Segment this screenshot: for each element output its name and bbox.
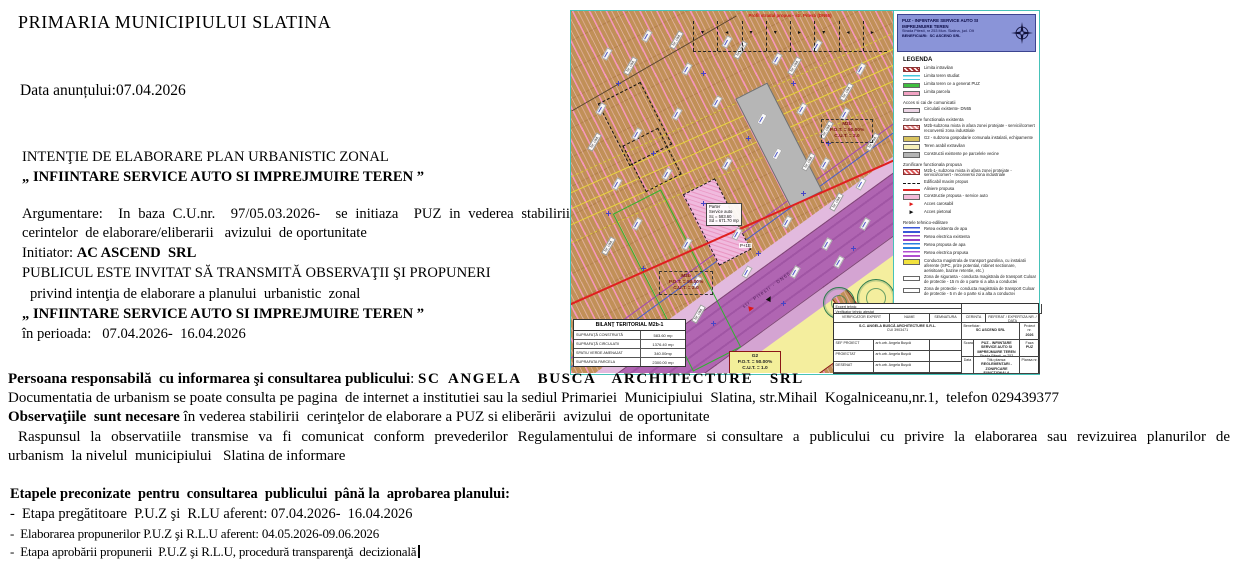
observations-line[interactable]: Observaţiile sunt necesare în vederea st… bbox=[8, 408, 1230, 427]
survey-marker bbox=[781, 215, 792, 228]
legend-item: Retea propusa de apa bbox=[903, 243, 1036, 249]
notice-plan-title-repeat[interactable]: „ INFIINTARE SERVICE AUTO SI IMPREJMUIRE… bbox=[22, 305, 570, 324]
zone-label-m2b: M2bP.O.T. = 50.00%C.U.T. = 2.0 bbox=[659, 271, 713, 295]
proiect-title: PUZ - INFIINTARE SERVICE AUTO SI IMPREJM… bbox=[976, 341, 1018, 354]
survey-marker bbox=[601, 47, 612, 60]
legend-item-label: Retea electrica existenta bbox=[924, 235, 1036, 240]
initiator-value: AC ASCEND SRL bbox=[77, 245, 197, 261]
survey-cross-icon bbox=[851, 246, 856, 251]
documentation-line[interactable]: Documentatia de urbanism se poate consul… bbox=[8, 389, 1230, 408]
legend-swatch-icon bbox=[903, 276, 920, 282]
legend-item: Limita parcela bbox=[903, 90, 1036, 96]
legend-item-label: Retea existenta de apa bbox=[924, 227, 1036, 232]
street-profile-detail: Profil stradal propus - str. Pitesti (DN… bbox=[693, 13, 887, 69]
titleblock-plansa: Titlu plansa:REGLEMENTARI - ZONIFICARE F… bbox=[974, 357, 1020, 374]
legend-item-label: M2b-1- subzona mixta in afara zonei prot… bbox=[924, 169, 1036, 179]
titleblock-proiect-nr: Proiect nr.2026 bbox=[1020, 323, 1040, 340]
proiect-anul: 2026 bbox=[1022, 333, 1038, 337]
legend-swatch-icon bbox=[903, 259, 920, 265]
text-cursor bbox=[418, 545, 420, 558]
survey-cross-icon bbox=[701, 71, 706, 76]
notice-public-invite2[interactable]: privind intenţia de elaborare a planului… bbox=[22, 285, 570, 304]
titleblock-empty bbox=[962, 304, 1042, 314]
titleblock-data: Data bbox=[962, 357, 974, 374]
titleblock-plansa-nr: Plansa nr. bbox=[1020, 357, 1040, 374]
legend-item-label: Retea electrica propusa bbox=[924, 251, 1036, 256]
marker-tick bbox=[774, 152, 778, 158]
marker-tick bbox=[734, 232, 738, 238]
legend-item: G2 - subzona gospodarie comunala instala… bbox=[903, 136, 1036, 142]
legend-item-label: Limita teren ce a generat PUZ bbox=[924, 82, 1036, 87]
bilant-row-label: SUPRAFAŢĂ CIRCULATII bbox=[574, 340, 641, 348]
legend-header: PUZ - INFIINTARE SERVICE AUTO SI IMPREJM… bbox=[897, 14, 1036, 52]
titleblock-faza: FazaPUZ bbox=[1020, 340, 1040, 357]
legend-header-title: PUZ - INFIINTARE SERVICE AUTO SI IMPREJM… bbox=[902, 18, 1009, 29]
building-label: ParterService autoSc = 583.60Sd = 671.70… bbox=[706, 203, 742, 226]
label-line: Sd = 671.70 mp bbox=[709, 219, 739, 224]
legend-swatch-icon bbox=[903, 189, 920, 191]
legend-swatch-icon bbox=[903, 251, 920, 257]
survey-cross-icon bbox=[791, 81, 796, 86]
titleblock-col-header: CERINTA bbox=[962, 314, 986, 323]
titleblock-col-header: SEMNATURA bbox=[930, 314, 962, 323]
parcel-cadastral-label: Nr. cad. bbox=[601, 236, 616, 256]
bilant-row: SUPRAFAŢĂ CONSTRUITĂ583.60 mp bbox=[574, 331, 685, 340]
faza-value: PUZ bbox=[1022, 345, 1038, 349]
marker-tick bbox=[674, 112, 678, 118]
spacer bbox=[22, 189, 570, 205]
legend-item: Retea electrica existenta bbox=[903, 235, 1036, 241]
marker-tick bbox=[644, 34, 648, 40]
arrow-swatch-icon: ► bbox=[903, 202, 920, 208]
survey-marker bbox=[796, 102, 807, 115]
survey-marker bbox=[671, 107, 682, 120]
legend-swatch-icon bbox=[903, 243, 920, 249]
beneficiar-value: SC ASCEND SRL bbox=[964, 328, 1018, 332]
titleblock-role-label: DESENAT bbox=[834, 362, 874, 373]
legend-swatch-icon bbox=[903, 136, 920, 142]
marker-tick bbox=[784, 220, 788, 226]
legend-item: Teren arabil extravilan bbox=[903, 144, 1036, 150]
titleblock-role-name: arh.urb. Angela Buşcă bbox=[874, 362, 930, 373]
bilant-title: BILANŢ TERITORIAL M2b-1 bbox=[574, 320, 685, 331]
legend-item: Limita intravilan bbox=[903, 66, 1036, 72]
titleblock-col-header: VERIFICATOR EXPERT bbox=[834, 314, 890, 323]
legend-item-label: Acces pietonal bbox=[924, 210, 1036, 215]
legend-section-heading: Retele tehnico-edilitare bbox=[903, 220, 1039, 225]
marker-tick bbox=[862, 222, 866, 228]
legend-swatch-icon bbox=[903, 144, 920, 150]
marker-tick bbox=[842, 112, 846, 118]
legend-swatch-icon bbox=[903, 125, 920, 131]
responsible-label: Persoana responsabilă cu informarea şi c… bbox=[8, 371, 410, 387]
compass-rose-icon bbox=[1011, 22, 1033, 44]
marker-tick bbox=[604, 52, 608, 58]
response-paragraph[interactable]: Raspunsul la observatiile transmise va f… bbox=[8, 428, 1230, 466]
stage-item[interactable]: - Etapa pregătitoare P.U.Z şi R.LU afere… bbox=[10, 505, 710, 525]
marker-tick bbox=[684, 242, 688, 248]
legend-item-label: Edificabil maxim propus bbox=[924, 180, 1036, 185]
marker-tick bbox=[858, 182, 862, 188]
marker-tick bbox=[822, 162, 826, 168]
arrow-swatch-icon: ► bbox=[903, 210, 920, 216]
zone-label-g2: G2P.O.T. = 50.00%C.U.T. = 1.0 bbox=[729, 351, 781, 373]
stages-list: - Etapa pregătitoare P.U.Z şi R.LU afere… bbox=[10, 505, 710, 561]
legend-item: Edificabil maxim propus bbox=[903, 180, 1036, 185]
titleblock-role-label: SEF PROIECT bbox=[834, 340, 874, 351]
street-profile-section: ▾◂▾▾ ▸▾◂▸ bbox=[693, 21, 887, 52]
titleblock-company: S.C. ANGELA BUSCĂ ARCHITECTURE S.R.L.CUI… bbox=[834, 323, 962, 340]
bilant-row: SUPRAFATA PARCELA2300.00 mp bbox=[574, 358, 685, 366]
legend-item: ►Acces pietonal bbox=[903, 210, 1036, 216]
bilant-rows: SUPRAFAŢĂ CONSTRUITĂ583.60 mpSUPRAFAŢĂ C… bbox=[574, 331, 685, 366]
titleblock-role-label: PROIECTAT bbox=[834, 351, 874, 362]
legend-item-label: Teren arabil extravilan bbox=[924, 144, 1036, 149]
stage-item[interactable]: - Etapa aprobării propunerii P.U.Z şi R.… bbox=[10, 543, 710, 561]
bilant-row-value: 2300.00 mp bbox=[641, 358, 685, 366]
label-line: C.U.T. = 2.0 bbox=[825, 134, 869, 140]
legend-swatch-icon bbox=[903, 83, 920, 89]
marker-tick bbox=[664, 172, 668, 178]
stage-item[interactable]: - Elaborarea propunerilor P.U.Z şi R.L.U… bbox=[10, 525, 710, 543]
legend-item: Zona de protectie - conducta magistrala … bbox=[903, 287, 1036, 297]
footer-block[interactable]: Persoana responsabilă cu informarea şi c… bbox=[8, 370, 1230, 466]
survey-marker bbox=[721, 157, 732, 170]
marker-tick bbox=[792, 270, 796, 276]
legend-section-heading: Zonificare functionala existenta bbox=[903, 117, 1039, 122]
legend-swatch-icon bbox=[903, 183, 920, 184]
legend-swatch-icon bbox=[903, 152, 920, 158]
legend-item-label: Circulatii existente- DN65 bbox=[924, 107, 1036, 112]
marker-tick bbox=[836, 260, 840, 266]
puz-map-panel: str. Pitesti - DN65 ParterService autoSc… bbox=[570, 10, 1040, 375]
legend-items: Limita intravilanLimita teren studiatLim… bbox=[894, 66, 1039, 297]
titleblock-role-name: arh.urb. Angela Buşcă bbox=[874, 351, 930, 362]
survey-cross-icon bbox=[781, 301, 786, 306]
responsible-value: SC ANGELA BUSCA ARCHITECTURE SRL bbox=[418, 371, 804, 387]
notice-argumentare[interactable]: Argumentare: In baza C.U.nr. 97/05.03.20… bbox=[22, 205, 570, 244]
titleblock-signature-cell bbox=[930, 340, 962, 351]
legend-swatch-icon bbox=[903, 227, 920, 233]
legend-header-beneficiary: BENEFICIARI: SC ASCEND SRL bbox=[902, 34, 1009, 39]
stages-block[interactable]: Etapele preconizate pentru consultarea p… bbox=[10, 485, 710, 561]
legend-section-heading: Acces si cai de comunicatii bbox=[903, 100, 1039, 105]
plansa-title: REGLEMENTARI - ZONIFICARE FUNCTIONALA bbox=[976, 362, 1018, 374]
legend-item-label: G2 - subzona gospodarie comunala instala… bbox=[924, 136, 1036, 141]
legend-item: Limita teren ce a generat PUZ bbox=[903, 82, 1036, 88]
legend-item-label: Constructii existente pe parcelele vecin… bbox=[924, 152, 1036, 157]
legend-swatch-icon bbox=[903, 108, 920, 114]
parcel-cadastral-label: Nr. cad. bbox=[587, 132, 602, 152]
legend-item: Aliniere propusa bbox=[903, 187, 1036, 192]
survey-cross-icon bbox=[606, 211, 611, 216]
bilant-row-value: 340.00mp bbox=[641, 349, 685, 357]
legend-item-label: Limita parcela bbox=[924, 90, 1036, 95]
survey-cross-icon bbox=[641, 266, 646, 271]
legend-item: Constructie propusa - service auto bbox=[903, 194, 1036, 200]
survey-marker bbox=[711, 95, 722, 108]
bilant-table: BILANŢ TERITORIAL M2b-1 SUPRAFAŢĂ CONSTR… bbox=[573, 319, 686, 367]
survey-cross-icon bbox=[746, 136, 751, 141]
legend-item-label: M2b-subzona mixta in afara zonei proteja… bbox=[924, 124, 1036, 134]
titleblock-proiect: PUZ - INFIINTARE SERVICE AUTO SI IMPREJM… bbox=[974, 340, 1020, 357]
legend-item-label: Limita teren studiat bbox=[924, 74, 1036, 79]
legend-swatch-icon bbox=[903, 75, 920, 81]
marker-tick bbox=[799, 107, 803, 113]
marker-tick bbox=[614, 182, 618, 188]
survey-marker bbox=[681, 62, 692, 75]
titleblock-col-header: REFERAT / EXPERTIZA NR. / DATA bbox=[986, 314, 1040, 323]
legend-swatch-icon bbox=[903, 194, 920, 200]
bilant-row-value: 583.60 mp bbox=[641, 331, 685, 339]
building-height-tag: P+1E bbox=[739, 243, 752, 248]
titleblock-signature-cell bbox=[930, 362, 962, 373]
drawing-title-block: Expert tehnicVerificator tehnic atestatV… bbox=[833, 303, 1039, 374]
legend-item-label: Acces carosabil bbox=[924, 202, 1036, 207]
notice-block[interactable]: INTENŢIE DE ELABORARE PLAN URBANISTIC ZO… bbox=[22, 148, 570, 345]
legend-item: Conducta magistrala de transport gazolin… bbox=[903, 259, 1036, 273]
legend-item-label: Conducta magistrala de transport gazolin… bbox=[924, 259, 1036, 273]
legend-item-label: Constructie propusa - service auto bbox=[924, 194, 1036, 199]
proiect-nr-label: Proiect nr. bbox=[1022, 324, 1038, 333]
legend-item: M2b-subzona mixta in afara zonei proteja… bbox=[903, 124, 1036, 134]
legend-item: Limita teren studiat bbox=[903, 74, 1036, 80]
titleblock-beneficiar: Beneficiar:SC ASCEND SRL bbox=[962, 323, 1020, 340]
titleblock-company-cui: CUI 3903471 bbox=[836, 328, 960, 332]
marker-tick bbox=[634, 132, 638, 138]
titleblock-signature-cell bbox=[930, 351, 962, 362]
legend-swatch-icon bbox=[903, 288, 920, 294]
survey-cross-icon bbox=[711, 321, 716, 326]
bilant-row-label: SPATIU VERDE AMENAJAT bbox=[574, 349, 641, 357]
marker-tick bbox=[714, 100, 718, 106]
bilant-row: SUPRAFAŢĂ CIRCULATII1376.40 mp bbox=[574, 340, 685, 349]
legend-item: M2b-1- subzona mixta in afara zonei prot… bbox=[903, 169, 1036, 179]
notice-initiator[interactable]: Initiator: AC ASCEND SRL bbox=[22, 244, 570, 263]
legend-item-label: Aliniere propusa bbox=[924, 187, 1036, 192]
survey-cross-icon bbox=[651, 151, 656, 156]
zone-label-m2b: M2bP.O.T. = 50.00%C.U.T. = 2.0 bbox=[821, 119, 873, 143]
legend-item: Constructii existente pe parcelele vecin… bbox=[903, 152, 1036, 158]
legend-swatch-icon bbox=[903, 235, 920, 241]
document-page: PRIMARIA MUNICIPIULUI SLATINA Data anunț… bbox=[0, 0, 1237, 562]
label-line: C.U.T. = 2.0 bbox=[663, 286, 709, 292]
marker-tick bbox=[598, 107, 602, 113]
initiator-label: Initiator: bbox=[22, 245, 77, 261]
legend-item: Zona de siguranta - conducta magistrala … bbox=[903, 275, 1036, 285]
observations-label: Observaţiile sunt necesare bbox=[8, 409, 180, 425]
legend-item: ►Acces carosabil bbox=[903, 202, 1036, 208]
titleblock-role-name: arh.urb. Angela Buşcă bbox=[874, 340, 930, 351]
notice-period[interactable]: în perioada: 07.04.2026- 16.04.2026 bbox=[22, 325, 570, 344]
org-title[interactable]: PRIMARIA MUNICIPIULUI SLATINA bbox=[18, 12, 331, 33]
marker-tick bbox=[744, 270, 748, 276]
access-carosabil-arrow-icon: ► bbox=[746, 303, 757, 314]
legend-item-label: Limita intravilan bbox=[924, 66, 1036, 71]
announcement-date[interactable]: Data anunțului:07.04.2026 bbox=[20, 82, 186, 100]
bilant-row: SPATIU VERDE AMENAJAT340.00mp bbox=[574, 349, 685, 358]
survey-cross-icon bbox=[616, 81, 621, 86]
stages-title[interactable]: Etapele preconizate pentru consultarea p… bbox=[10, 485, 710, 505]
legend-swatch-icon bbox=[903, 169, 920, 175]
marker-tick bbox=[724, 162, 728, 168]
bilant-row-value: 1376.40 mp bbox=[641, 340, 685, 348]
legend-item-label: Retea propusa de apa bbox=[924, 243, 1036, 248]
label-line: C.U.T. = 1.0 bbox=[733, 366, 777, 372]
legend-swatch-icon bbox=[903, 67, 920, 73]
survey-marker bbox=[611, 177, 622, 190]
street-profile-label: Profil stradal propus - str. Pitesti (DN… bbox=[693, 13, 887, 18]
observations-rest: în vederea stabilirii cerinţelor de elab… bbox=[180, 409, 710, 425]
bilant-row-label: SUPRAFAŢĂ CONSTRUITĂ bbox=[574, 331, 641, 339]
bilant-row-label: SUPRAFATA PARCELA bbox=[574, 358, 641, 366]
marker-tick bbox=[759, 117, 763, 123]
marker-tick bbox=[824, 242, 828, 248]
titleblock-col-header: NUME bbox=[890, 314, 930, 323]
marker-tick bbox=[684, 67, 688, 73]
survey-cross-icon bbox=[701, 201, 706, 206]
survey-cross-icon bbox=[756, 251, 761, 256]
notice-public-invite[interactable]: PUBLICUL ESTE INVITAT SĂ TRANSMITĂ OBSER… bbox=[22, 264, 570, 283]
legend-item: Retea existenta de apa bbox=[903, 227, 1036, 233]
titleblock-scara: Scara bbox=[962, 340, 974, 357]
survey-cross-icon bbox=[801, 191, 806, 196]
legend-title: LEGENDA bbox=[903, 57, 1039, 63]
legend-swatch-icon bbox=[903, 91, 920, 97]
survey-marker bbox=[641, 29, 652, 42]
legend-item: Retea electrica propusa bbox=[903, 251, 1036, 257]
notice-plan-title[interactable]: „ INFIINTARE SERVICE AUTO SI IMPREJMUIRE… bbox=[22, 168, 570, 187]
legend-item-label: Zona de siguranta - conducta magistrala … bbox=[924, 275, 1036, 285]
legend-section-heading: Zonificare functionala propusa bbox=[903, 162, 1039, 167]
legend-item: Circulatii existente- DN65 bbox=[903, 107, 1036, 113]
marker-tick bbox=[634, 222, 638, 228]
notice-intent-line[interactable]: INTENŢIE DE ELABORARE PLAN URBANISTIC ZO… bbox=[22, 148, 570, 167]
legend-item-label: Zona de protectie - conducta magistrala … bbox=[924, 287, 1036, 297]
